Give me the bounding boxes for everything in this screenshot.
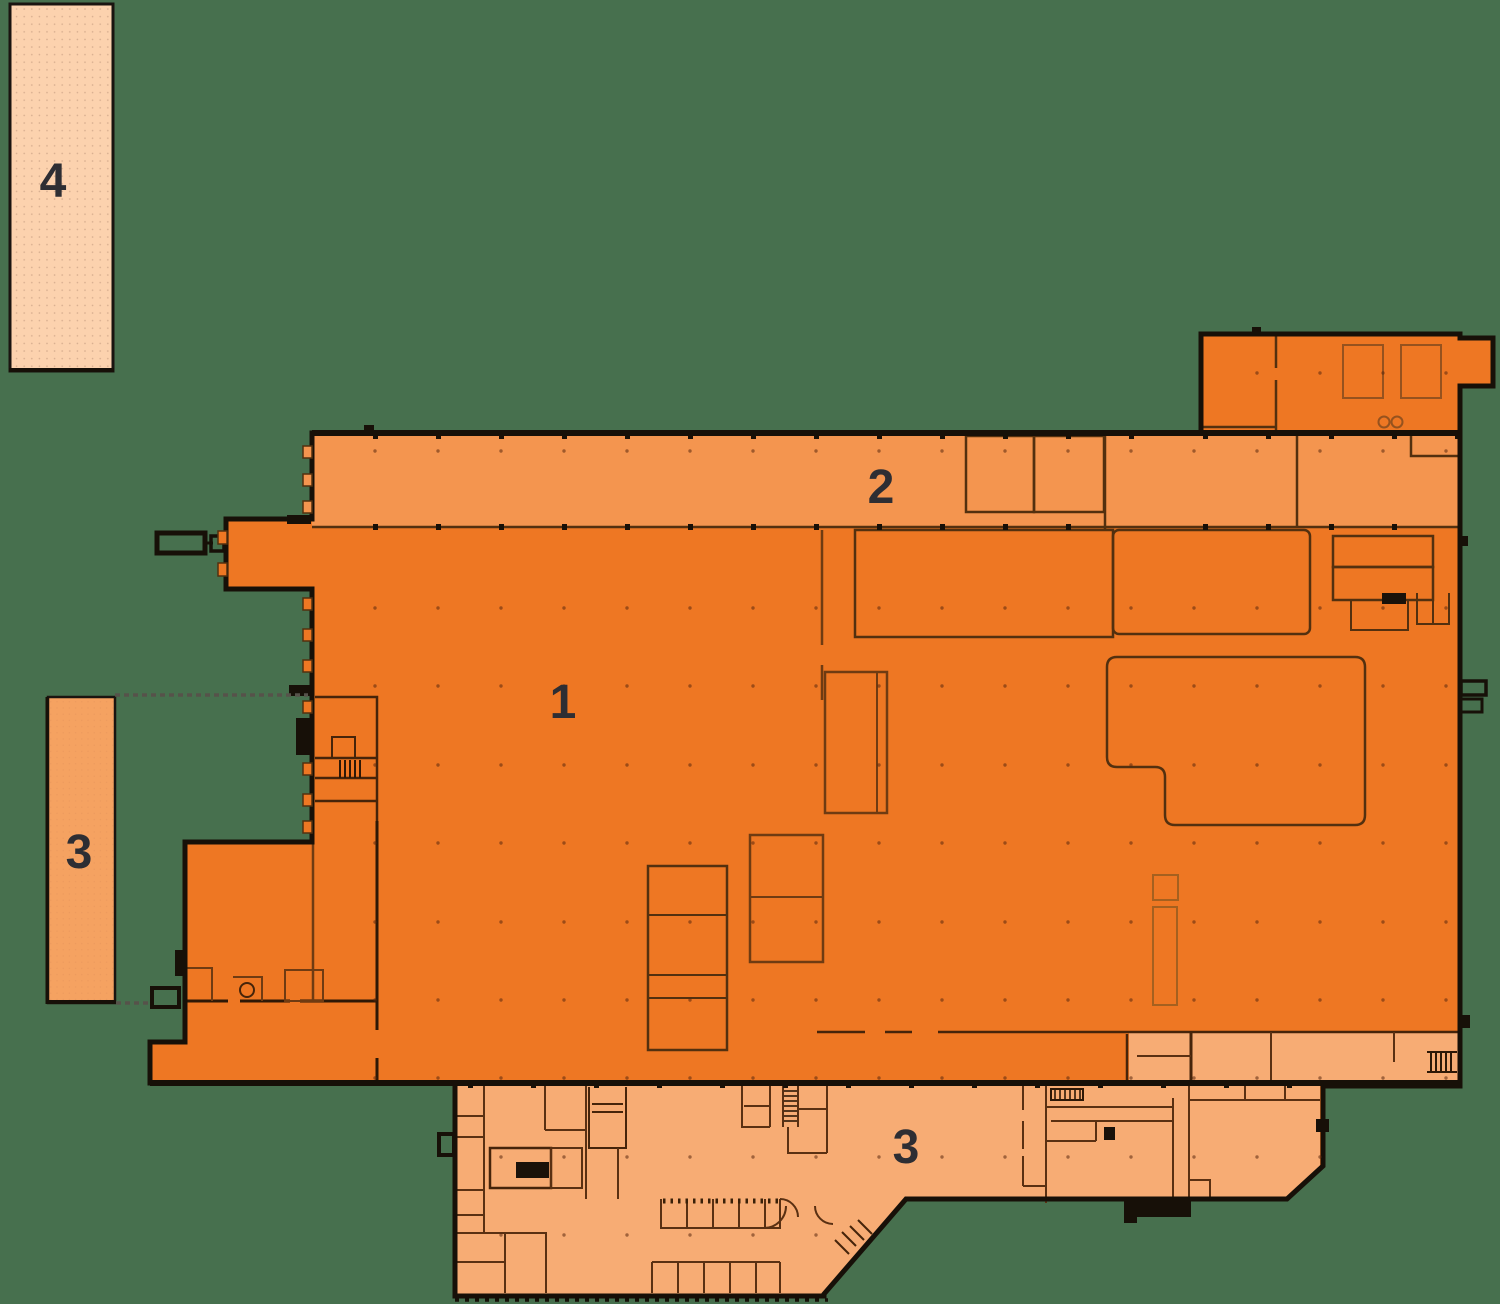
svg-text:3: 3 [893,1121,920,1174]
svg-text:3: 3 [66,826,93,879]
svg-text:2: 2 [868,461,895,514]
svg-text:4: 4 [40,155,67,208]
svg-text:1: 1 [550,676,577,729]
